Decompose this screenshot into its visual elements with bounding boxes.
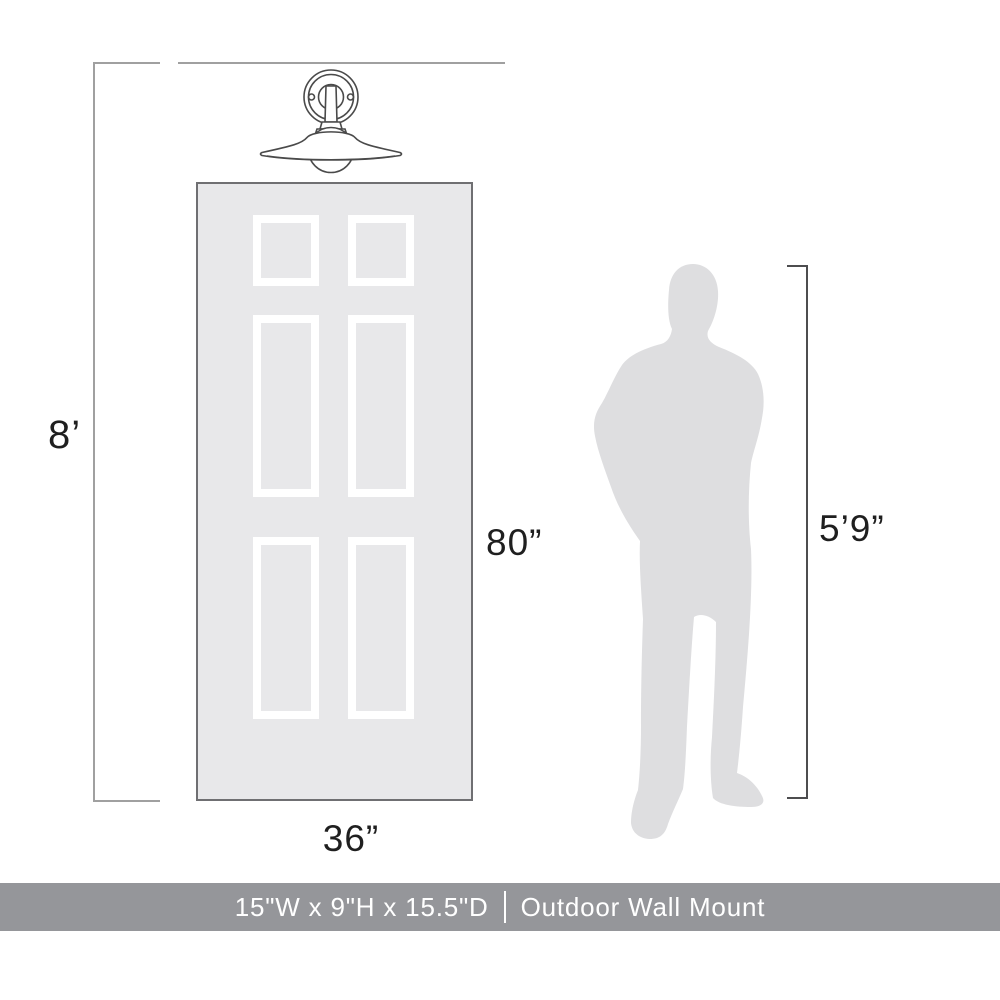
person-bracket-top-tick [787, 265, 808, 267]
door-panel-bottom-right [348, 537, 414, 719]
wall-sconce-illustration [250, 60, 420, 185]
sconce-shade [261, 132, 402, 160]
ceiling-bracket-vertical [93, 62, 95, 802]
person-bracket-vertical [806, 265, 808, 799]
sconce-stem [325, 86, 337, 122]
label-door-height: 80” [486, 522, 542, 564]
label-ceiling-height: 8’ [48, 413, 81, 458]
door-panel-top-right [348, 215, 414, 286]
person-bracket-bottom-tick [787, 797, 808, 799]
door-panel-middle-left [253, 315, 319, 497]
door [196, 182, 473, 801]
label-door-width: 36” [311, 818, 391, 860]
footer-mount-type: Outdoor Wall Mount [521, 892, 766, 923]
footer-bar: 15"W x 9"H x 15.5"D Outdoor Wall Mount [0, 883, 1000, 931]
ceiling-bracket-bottom-tick [93, 800, 160, 802]
label-person-height: 5’9” [819, 508, 885, 550]
footer-divider [504, 891, 506, 923]
ceiling-bracket-top-tick [93, 62, 160, 64]
product-dimension-diagram: { "labels": { "ceiling_height": "8’", "d… [0, 0, 1000, 1000]
footer-dimensions: 15"W x 9"H x 15.5"D [235, 892, 489, 923]
door-panel-middle-right [348, 315, 414, 497]
door-panel-top-left [253, 215, 319, 286]
door-panel-bottom-left [253, 537, 319, 719]
person-silhouette [560, 250, 800, 850]
